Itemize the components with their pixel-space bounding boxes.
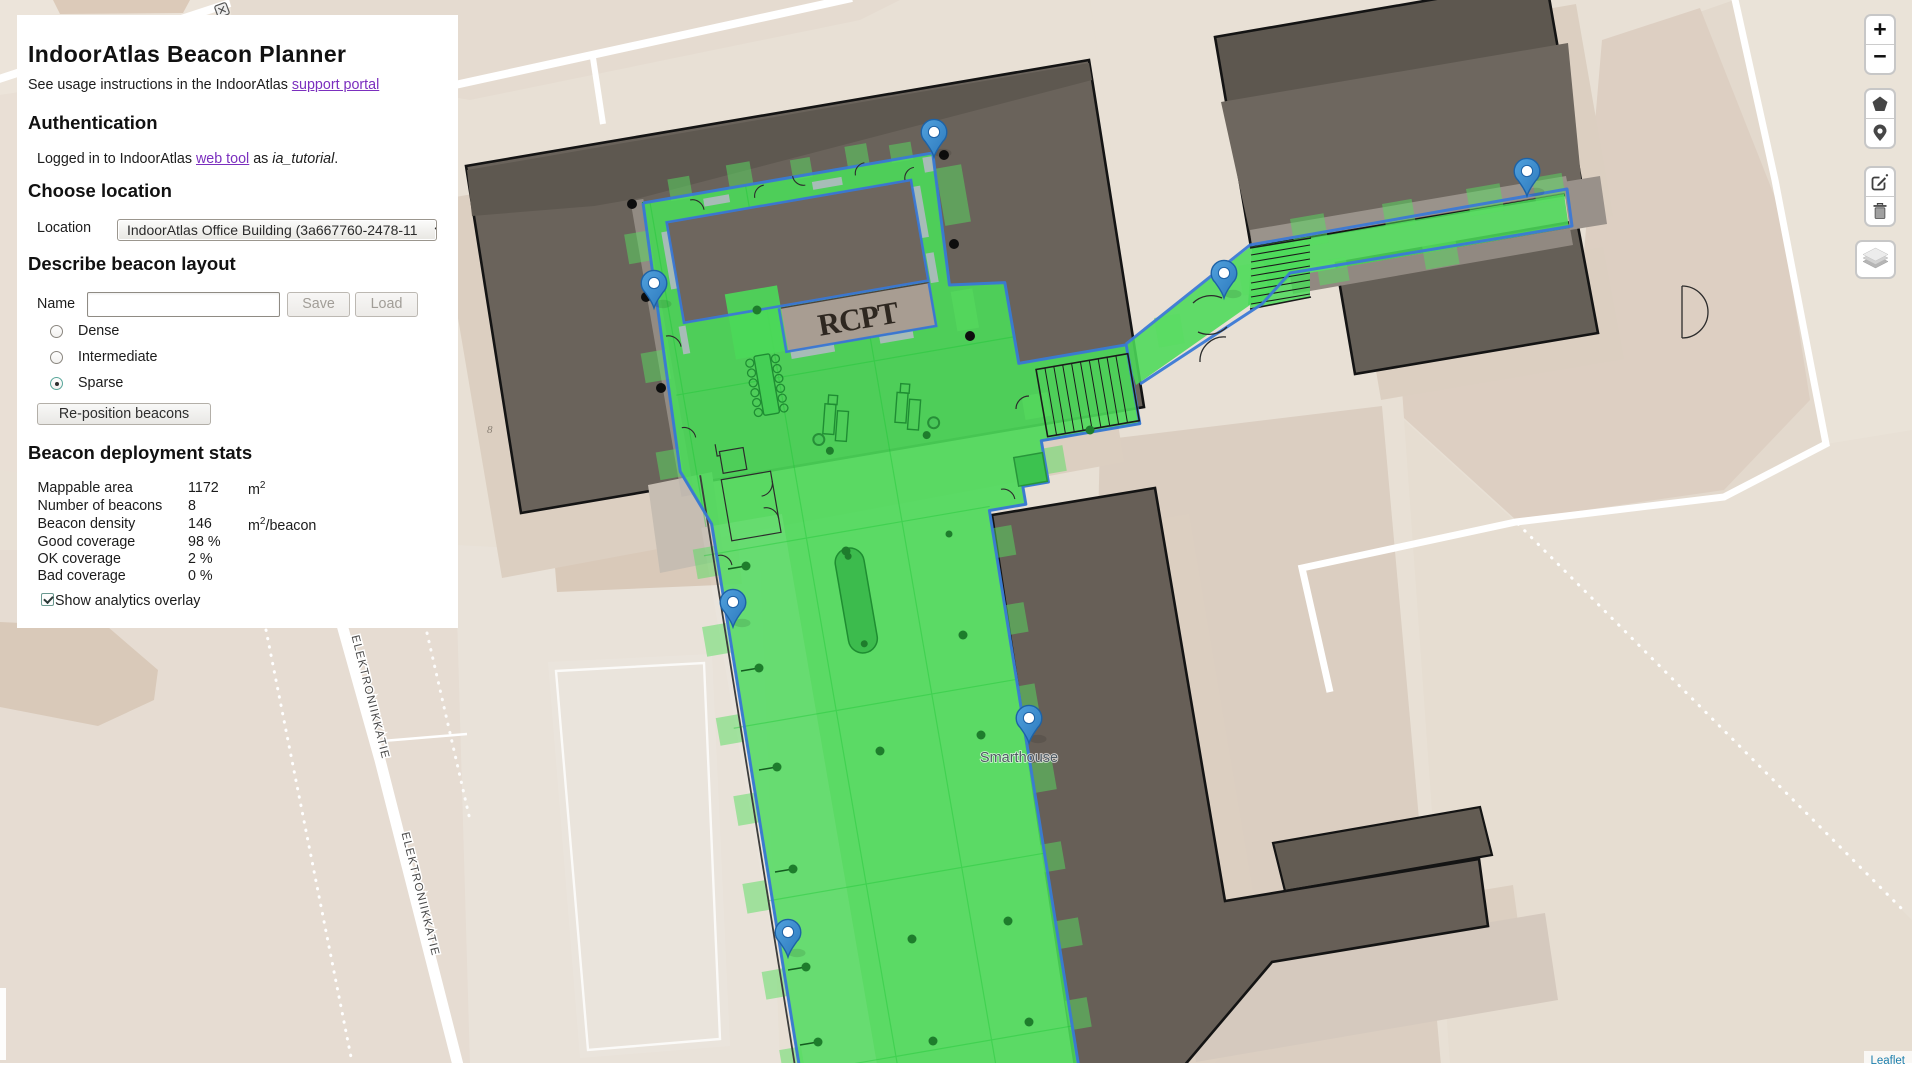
svg-text:Leaflet: Leaflet — [1870, 1055, 1905, 1067]
svg-text:8: 8 — [487, 424, 493, 436]
svg-text:Smarthouse: Smarthouse — [980, 750, 1058, 766]
